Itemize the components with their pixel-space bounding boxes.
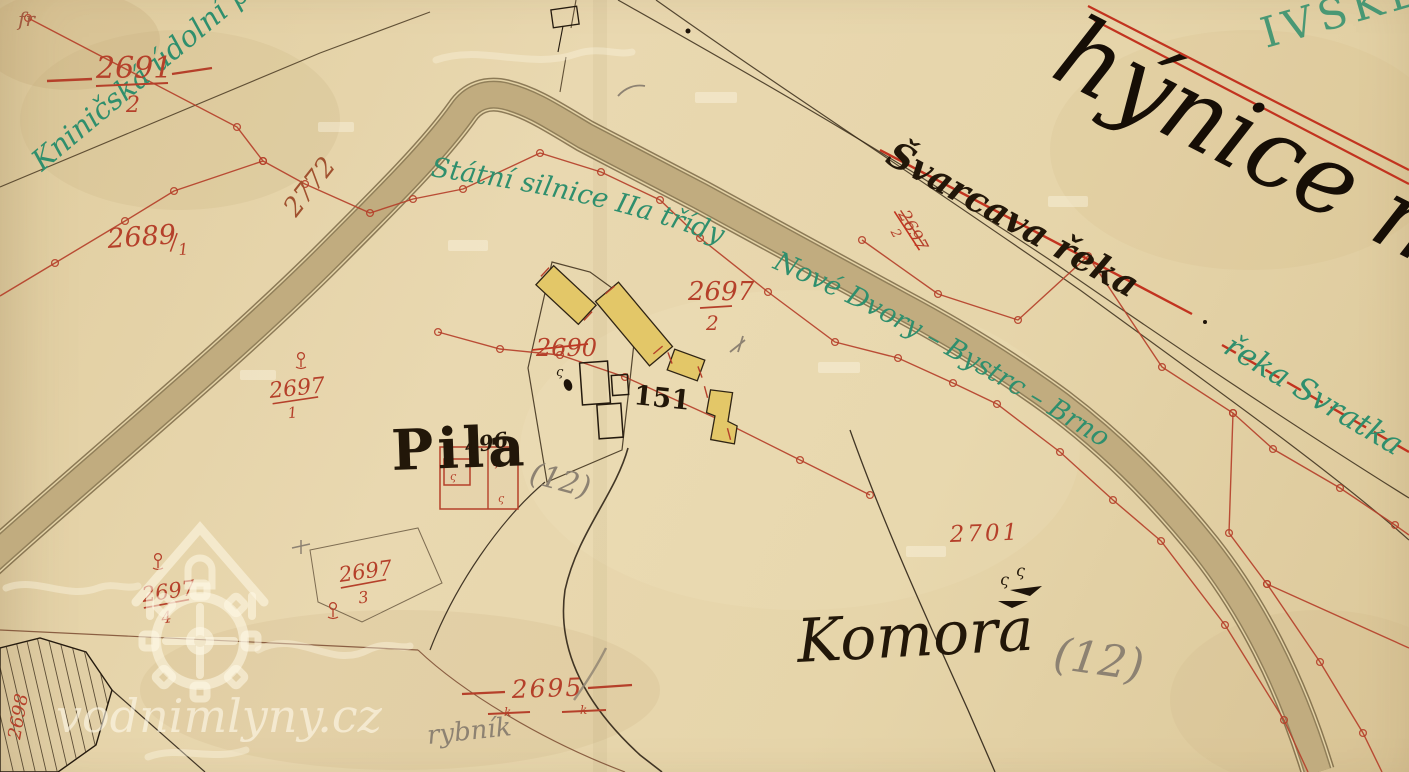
parcel-2701: 2701 xyxy=(948,520,1020,548)
corner-mark: fr xyxy=(16,7,36,31)
watermark-text: vodnimlyny.cz xyxy=(56,689,383,743)
svg-text:1: 1 xyxy=(178,239,189,259)
svg-text:2: 2 xyxy=(886,226,904,241)
meadow-symbol xyxy=(296,353,306,369)
survey-dot xyxy=(686,29,691,34)
survey-dot xyxy=(1203,320,1207,324)
label-chamber: Komora xyxy=(794,595,1035,677)
svg-text:3: 3 xyxy=(357,587,370,607)
pen-curl-mark: ς xyxy=(556,365,564,380)
svg-text:1: 1 xyxy=(287,403,298,422)
svg-text:ς: ς xyxy=(498,492,505,505)
top-structure xyxy=(551,6,579,52)
svg-text:2: 2 xyxy=(705,311,719,335)
svg-text:ς: ς xyxy=(1000,570,1009,589)
map-canvas[interactable]: ς ς ς ς ς ς xyxy=(0,0,1409,772)
pencil-mark xyxy=(618,85,645,96)
parcel-2697-2-struck: 2697 2 xyxy=(879,203,931,261)
label-river-new: řeka Svratka xyxy=(1218,328,1409,463)
svg-text:2695: 2695 xyxy=(510,673,584,705)
svg-text:2697: 2697 xyxy=(336,556,394,587)
svg-text:k: k xyxy=(504,705,511,719)
svg-text:2697: 2697 xyxy=(687,277,755,307)
svg-text:2: 2 xyxy=(125,93,140,118)
label-house-151: 151 xyxy=(632,380,691,417)
svg-text:2691: 2691 xyxy=(95,51,172,86)
parcel-2689-1: 2689 1 xyxy=(105,218,189,264)
parcel-2690-struck: 2690 xyxy=(535,334,597,362)
note-12-chamber: (12) xyxy=(1050,628,1147,691)
svg-text:ς: ς xyxy=(1016,561,1025,580)
parcel-2697-3: 2697 3 xyxy=(336,556,397,610)
svg-text:2689: 2689 xyxy=(105,219,177,255)
pencil-cross xyxy=(292,540,310,554)
parcel-2697-1: 2697 1 xyxy=(267,373,328,424)
svg-text:k: k xyxy=(580,703,587,717)
